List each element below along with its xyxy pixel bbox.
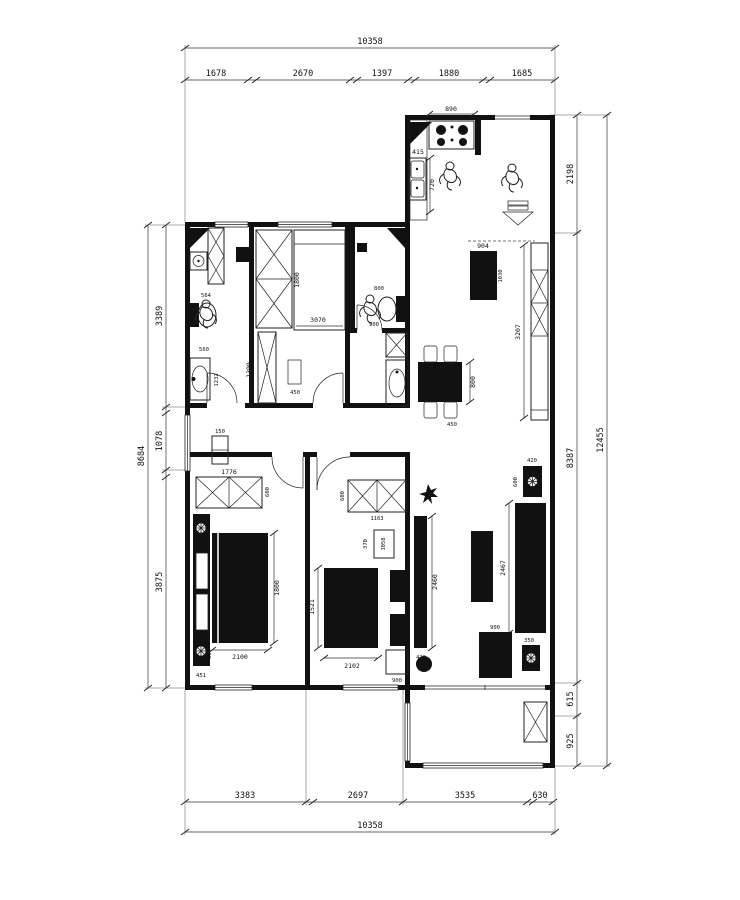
dim-total-right: 12455: [596, 427, 606, 453]
dim-closet-height: 1399: [245, 362, 253, 378]
dim-label: 1397: [372, 69, 392, 79]
balcony-sliding-door: [425, 685, 545, 690]
entry-arrow-icon: [503, 201, 533, 225]
door-bedroom-left: [272, 457, 303, 488]
window: [278, 222, 332, 227]
corner-shelf-icon: [190, 228, 210, 248]
chair: [444, 402, 457, 418]
dim-label: 1685: [512, 69, 532, 79]
balcony-cabinet: [524, 702, 547, 742]
nightstand: [390, 570, 407, 602]
chair: [444, 346, 457, 362]
window: [185, 415, 190, 471]
door-bath-top: [207, 373, 237, 403]
dim-label: 925: [566, 733, 576, 748]
shoe-cabinet: [531, 243, 548, 420]
dim-label: 8387: [566, 448, 576, 468]
dim-sofa-length: 2467: [499, 560, 507, 576]
dim-bed-width: 1800: [273, 580, 281, 596]
dim-total-bottom: 10358: [357, 821, 383, 831]
dim-label: 1078: [155, 431, 165, 451]
dim-wardrobe-width: 1776: [221, 468, 237, 476]
dim-stove-depth: 525: [474, 129, 482, 141]
room-bedroom-mid: 600 1163 370 1058 1521 2102 900: [308, 480, 408, 684]
sink-icon: [409, 158, 426, 200]
room-bath-top: 564 560 1232: [190, 228, 249, 400]
dim-chain-left: 8684 3389 1078 3875: [137, 222, 170, 691]
media-wall: [414, 516, 427, 648]
dim-label: 615: [566, 691, 576, 706]
corner-shelf-icon: [387, 228, 405, 248]
dim-toilet-width: 564: [201, 293, 212, 299]
dim-cabinet-width: 900: [490, 625, 500, 631]
wardrobe: [196, 477, 262, 508]
dim-basin-length: 1232: [214, 373, 220, 386]
door-bedroom-top: [313, 373, 343, 403]
lamp-icon: [526, 653, 536, 663]
wardrobe: [348, 480, 406, 512]
dim-side-table-width: 420: [527, 458, 537, 464]
nightstand: [196, 553, 208, 589]
dim-wardrobe-depth: 600: [340, 491, 346, 501]
room-kitchen: 890 525 415 720: [409, 105, 482, 220]
wardrobe: [256, 230, 292, 328]
dim-total-top: 10358: [357, 37, 383, 47]
dim-entry-cabinet-depth: 1030: [498, 269, 504, 282]
extension-lines: [145, 45, 610, 835]
dim-nightstand: 300: [207, 649, 213, 659]
dim-chain-top: 10358 1678 2670 1397 1880 1685: [181, 37, 559, 83]
lamp-icon: [196, 646, 206, 656]
dim-wardrobe-width: 1163: [370, 516, 383, 522]
entry-cabinet: [470, 251, 497, 300]
dim-desk-depth: 370: [363, 539, 369, 549]
room-bedroom-left: 1776 600 1800 2100 300 451: [193, 468, 281, 679]
room-bedroom-top: 1800 1399 3070 450: [245, 230, 345, 403]
plant-icon: [419, 484, 438, 504]
window: [215, 685, 252, 690]
dim-counter-depth: 720: [428, 179, 436, 191]
washer-icon: [190, 252, 207, 270]
dim-bed-length: 2100: [232, 653, 248, 661]
dim-chair-width: 450: [447, 422, 457, 428]
dim-label: 3875: [155, 572, 165, 592]
dim-label: 630: [532, 791, 547, 801]
dim-bed-width: 1521: [308, 599, 316, 615]
dim-sink-width: 415: [412, 148, 424, 156]
cabinet: [479, 632, 512, 678]
person-figure: [502, 164, 523, 192]
window: [215, 222, 248, 227]
wall-tv: [236, 247, 249, 262]
chair: [424, 402, 437, 418]
bed: [212, 533, 268, 643]
window: [343, 685, 398, 690]
dim-chain-right: 2198 8387 615 925 12455: [566, 112, 611, 769]
entry-door-opening: [495, 116, 530, 119]
tall-cabinet: [208, 228, 224, 284]
dim-rug: 450: [290, 390, 300, 396]
dim-label: 3535: [455, 791, 475, 801]
plant-pot-icon: [416, 656, 432, 672]
dim-toilet-clear: 560: [199, 347, 209, 353]
dim-entry-cabinet-width: 904: [477, 242, 489, 250]
dim-stove-width: 890: [445, 105, 457, 113]
washbasin-icon: [386, 360, 408, 406]
dim-table-length: 800: [469, 376, 477, 388]
lamp-icon: [528, 477, 538, 487]
toilet-icon: [378, 296, 405, 322]
dim-side-table-depth: 600: [513, 477, 519, 487]
door-bedroom-mid: [317, 457, 350, 490]
sofa: [515, 503, 546, 633]
dim-wall-gap: 451: [196, 673, 206, 679]
dining-area: 800 450: [386, 333, 477, 428]
dim-bed-length: 2102: [344, 662, 360, 670]
bed: [324, 568, 378, 648]
closet: [258, 332, 276, 403]
tv-stand: [386, 650, 408, 674]
dining-table: [418, 362, 462, 402]
headboard-wall: [193, 514, 210, 666]
dim-label: 2198: [566, 164, 576, 184]
floor-plan: 10358 1678 2670 1397 1880 1685 3383 2697…: [0, 0, 740, 900]
lamp-icon: [196, 523, 206, 533]
room-bath-mid: 800 900: [357, 228, 405, 328]
dim-label: 2697: [348, 791, 368, 801]
entry-area: 904 1030: [468, 164, 535, 300]
dim-chain-bottom: 3383 2697 3535 630 10358: [181, 791, 559, 835]
balcony-window: [423, 763, 543, 768]
dim-cabinet-width: 150: [215, 429, 225, 435]
stove-icon: [429, 121, 474, 149]
dim-label: 2670: [293, 69, 313, 79]
room-living: 2460 420 3207 420 600 2467 350 900: [414, 242, 548, 678]
dim-label: 3383: [235, 791, 255, 801]
corridor: 150: [212, 429, 228, 464]
dim-shoe-cabinet: 3207: [514, 324, 522, 340]
coffee-table: [471, 531, 493, 602]
dim-label: 1678: [206, 69, 226, 79]
chair: [424, 346, 437, 362]
hall-cabinet-x: [386, 333, 407, 357]
dim-toilet-clear: 900: [369, 322, 379, 328]
person-figure: [360, 295, 381, 323]
dim-total-left: 8684: [137, 446, 147, 466]
dim-side-table-b: 350: [524, 638, 534, 644]
nightstand: [390, 614, 407, 646]
dim-shower-width: 800: [374, 286, 384, 292]
dim-label: 1880: [439, 69, 459, 79]
dim-desk-length: 1058: [381, 537, 387, 550]
dim-tv-stand: 900: [392, 678, 402, 684]
bed-outline: [294, 230, 345, 330]
dim-media-wall-length: 2460: [431, 574, 439, 590]
dim-wardrobe-depth: 600: [265, 487, 271, 497]
dim-bed-length: 3070: [310, 316, 326, 324]
person-figure: [440, 162, 461, 190]
nightstand: [196, 594, 208, 630]
dim-label: 3389: [155, 306, 165, 326]
rug: [288, 360, 301, 384]
window: [405, 703, 410, 761]
balcony: [524, 702, 547, 742]
shower-icon: [357, 243, 367, 252]
